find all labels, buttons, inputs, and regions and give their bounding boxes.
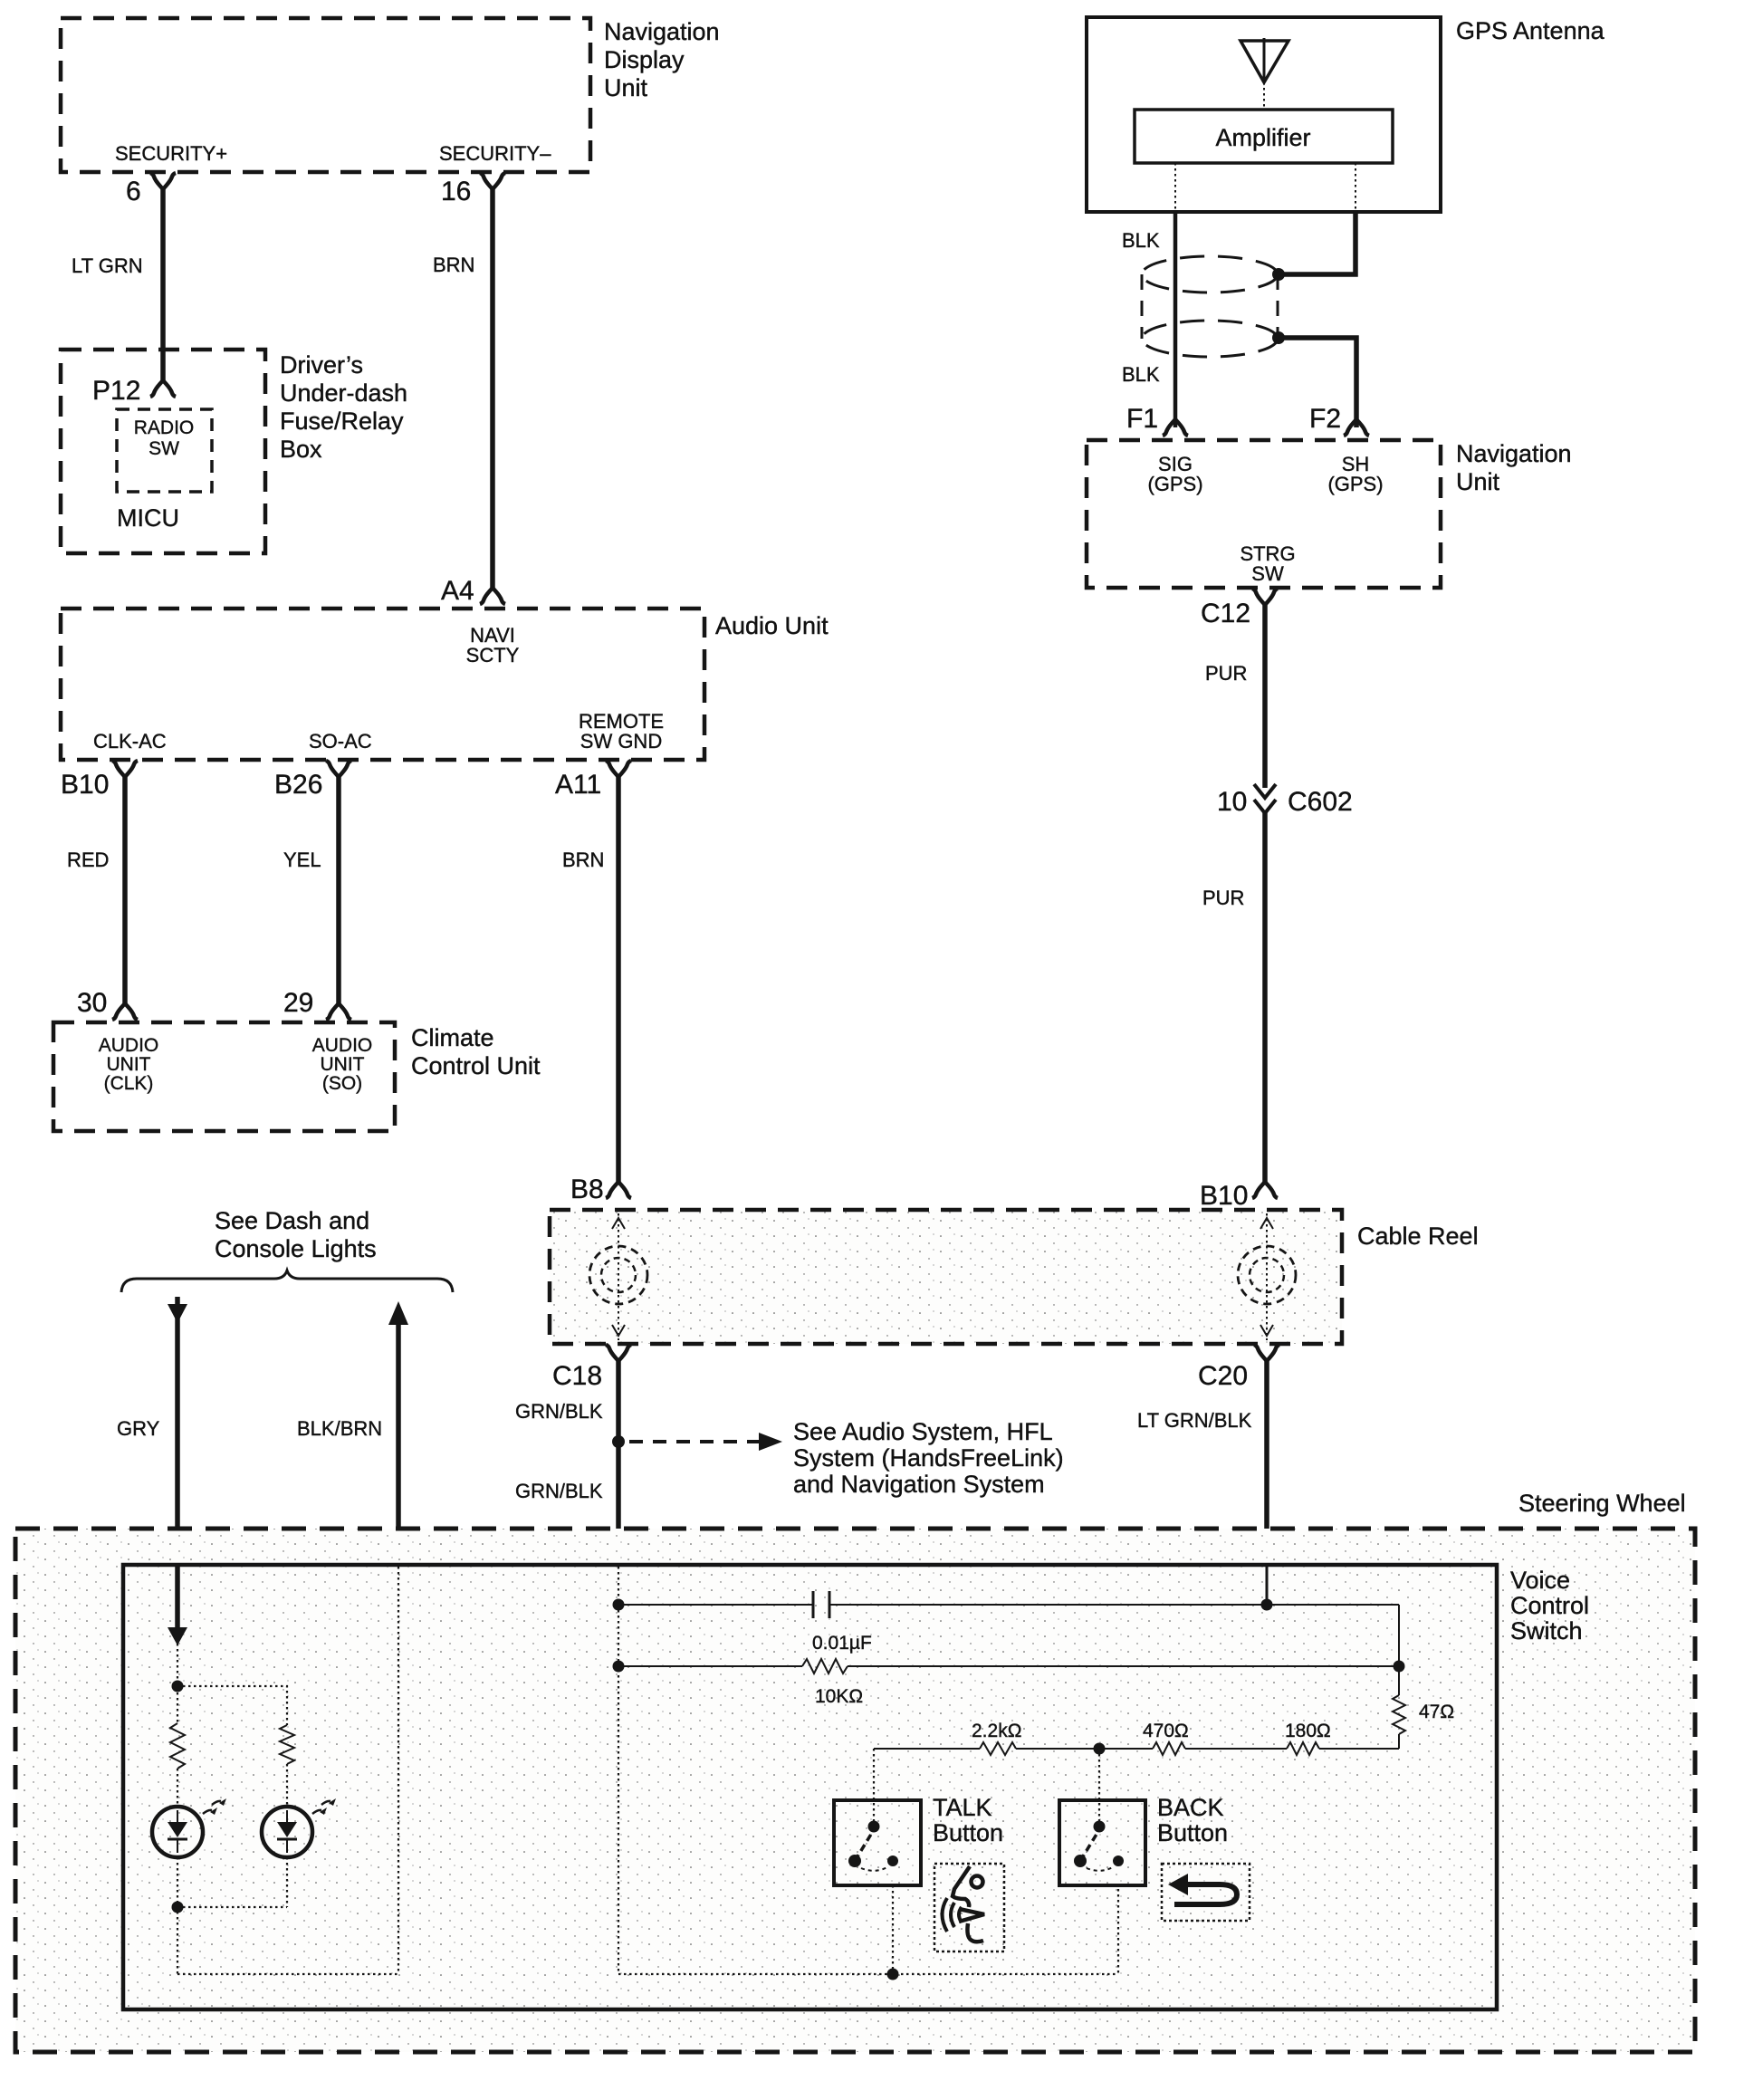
- svg-text:47Ω: 47Ω: [1419, 1702, 1454, 1722]
- svg-text:470Ω: 470Ω: [1143, 1721, 1189, 1741]
- svg-text:Display: Display: [604, 46, 685, 73]
- svg-text:(CLK): (CLK): [104, 1073, 154, 1094]
- svg-text:MICU: MICU: [117, 504, 179, 532]
- svg-text:16: 16: [441, 177, 471, 206]
- svg-text:F1: F1: [1126, 404, 1158, 434]
- svg-text:Button: Button: [1157, 1819, 1228, 1846]
- svg-text:SECURITY–: SECURITY–: [439, 142, 551, 165]
- svg-text:System (HandsFreeLink): System (HandsFreeLink): [793, 1444, 1064, 1472]
- svg-text:10KΩ: 10KΩ: [815, 1686, 863, 1707]
- svg-text:GRY: GRY: [117, 1417, 160, 1440]
- svg-text:Climate: Climate: [411, 1024, 494, 1051]
- svg-text:A4: A4: [441, 576, 474, 606]
- svg-text:SCTY: SCTY: [466, 644, 520, 666]
- svg-text:10: 10: [1217, 787, 1247, 817]
- svg-text:AUDIO: AUDIO: [312, 1035, 373, 1056]
- svg-text:BACK: BACK: [1157, 1794, 1224, 1821]
- svg-text:(GPS): (GPS): [1147, 473, 1202, 495]
- svg-text:SW GND: SW GND: [580, 730, 662, 753]
- svg-text:Button: Button: [933, 1819, 1003, 1846]
- svg-text:B10: B10: [1200, 1181, 1248, 1211]
- svg-text:Fuse/Relay: Fuse/Relay: [280, 408, 404, 435]
- svg-text:(SO): (SO): [322, 1073, 362, 1094]
- svg-text:BLK/BRN: BLK/BRN: [297, 1417, 382, 1440]
- svg-text:Console Lights: Console Lights: [215, 1235, 377, 1262]
- svg-text:Box: Box: [280, 436, 322, 463]
- svg-text:6: 6: [126, 177, 141, 206]
- svg-text:Amplifier: Amplifier: [1215, 124, 1310, 151]
- svg-text:BLK: BLK: [1122, 363, 1160, 386]
- svg-text:LT GRN/BLK: LT GRN/BLK: [1137, 1409, 1252, 1432]
- svg-text:SW: SW: [1251, 562, 1284, 585]
- svg-text:GRN/BLK: GRN/BLK: [515, 1400, 603, 1423]
- svg-text:C20: C20: [1198, 1361, 1248, 1391]
- svg-text:Voice: Voice: [1510, 1567, 1570, 1594]
- svg-text:Unit: Unit: [1456, 468, 1500, 495]
- svg-text:and Navigation System: and Navigation System: [793, 1471, 1045, 1498]
- svg-text:Under-dash: Under-dash: [280, 379, 407, 407]
- svg-text:0.01µF: 0.01µF: [812, 1633, 872, 1654]
- svg-text:SECURITY+: SECURITY+: [115, 142, 227, 165]
- svg-text:See Audio System, HFL: See Audio System, HFL: [793, 1418, 1053, 1445]
- svg-text:Switch: Switch: [1510, 1617, 1583, 1645]
- svg-text:SO-AC: SO-AC: [309, 730, 372, 753]
- svg-text:Steering Wheel: Steering Wheel: [1518, 1490, 1686, 1517]
- svg-text:Control: Control: [1510, 1592, 1589, 1619]
- svg-text:BLK: BLK: [1122, 229, 1160, 252]
- svg-text:RADIO: RADIO: [134, 417, 195, 438]
- svg-text:TALK: TALK: [933, 1794, 992, 1821]
- svg-text:AUDIO: AUDIO: [99, 1035, 159, 1056]
- svg-text:A11: A11: [555, 770, 601, 800]
- svg-text:Driver’s: Driver’s: [280, 351, 363, 379]
- svg-text:Navigation: Navigation: [1456, 440, 1572, 467]
- svg-text:LT GRN: LT GRN: [72, 254, 143, 277]
- svg-text:SW: SW: [148, 438, 179, 459]
- svg-text:P12: P12: [92, 376, 140, 406]
- svg-text:29: 29: [283, 988, 313, 1018]
- svg-text:180Ω: 180Ω: [1285, 1721, 1331, 1741]
- svg-text:B26: B26: [274, 770, 322, 800]
- svg-text:GRN/BLK: GRN/BLK: [515, 1480, 603, 1502]
- svg-text:Cable Reel: Cable Reel: [1357, 1223, 1479, 1250]
- svg-text:Navigation: Navigation: [604, 18, 720, 45]
- svg-text:PUR: PUR: [1202, 887, 1244, 909]
- svg-text:B8: B8: [570, 1175, 604, 1204]
- svg-text:F2: F2: [1309, 404, 1341, 434]
- svg-text:See Dash and: See Dash and: [215, 1207, 369, 1234]
- svg-text:2.2kΩ: 2.2kΩ: [972, 1721, 1021, 1741]
- svg-text:Control Unit: Control Unit: [411, 1052, 541, 1079]
- svg-text:B10: B10: [61, 770, 109, 800]
- svg-text:PUR: PUR: [1205, 662, 1247, 685]
- svg-text:Audio Unit: Audio Unit: [715, 612, 829, 639]
- svg-text:UNIT: UNIT: [321, 1054, 365, 1075]
- svg-text:Unit: Unit: [604, 74, 648, 101]
- svg-text:BRN: BRN: [562, 849, 604, 871]
- svg-text:RED: RED: [67, 849, 109, 871]
- svg-text:(GPS): (GPS): [1327, 473, 1383, 495]
- svg-text:BRN: BRN: [433, 254, 474, 276]
- svg-text:C12: C12: [1201, 599, 1250, 628]
- svg-text:30: 30: [77, 988, 107, 1018]
- svg-text:YEL: YEL: [283, 849, 321, 871]
- svg-text:GPS Antenna: GPS Antenna: [1456, 17, 1605, 44]
- svg-text:C18: C18: [552, 1361, 602, 1391]
- svg-text:CLK-AC: CLK-AC: [93, 730, 167, 753]
- svg-text:UNIT: UNIT: [107, 1054, 151, 1075]
- svg-text:C602: C602: [1288, 787, 1353, 817]
